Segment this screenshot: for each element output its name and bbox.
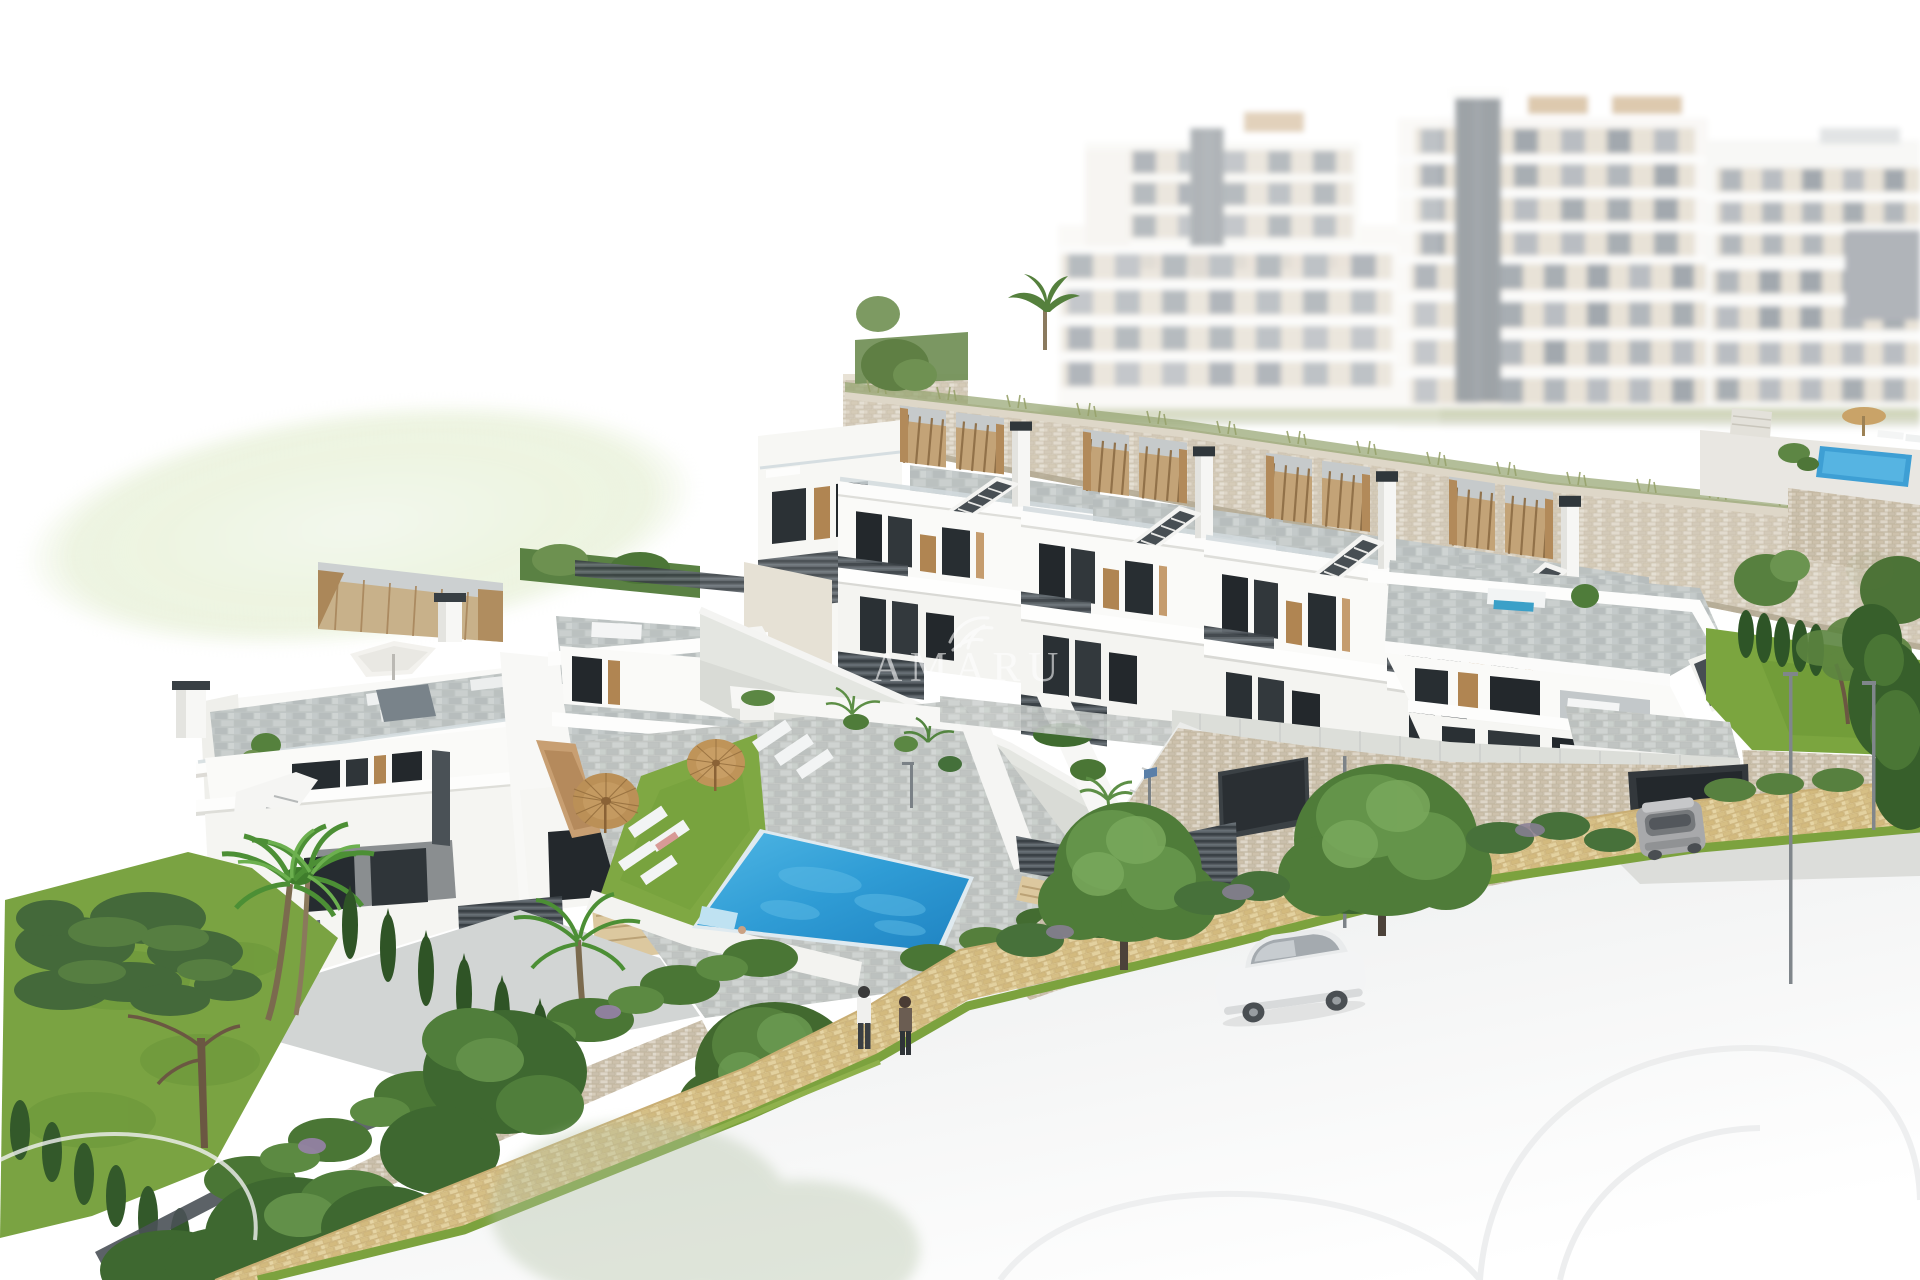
- svg-text:AMARU: AMARU: [872, 645, 1066, 691]
